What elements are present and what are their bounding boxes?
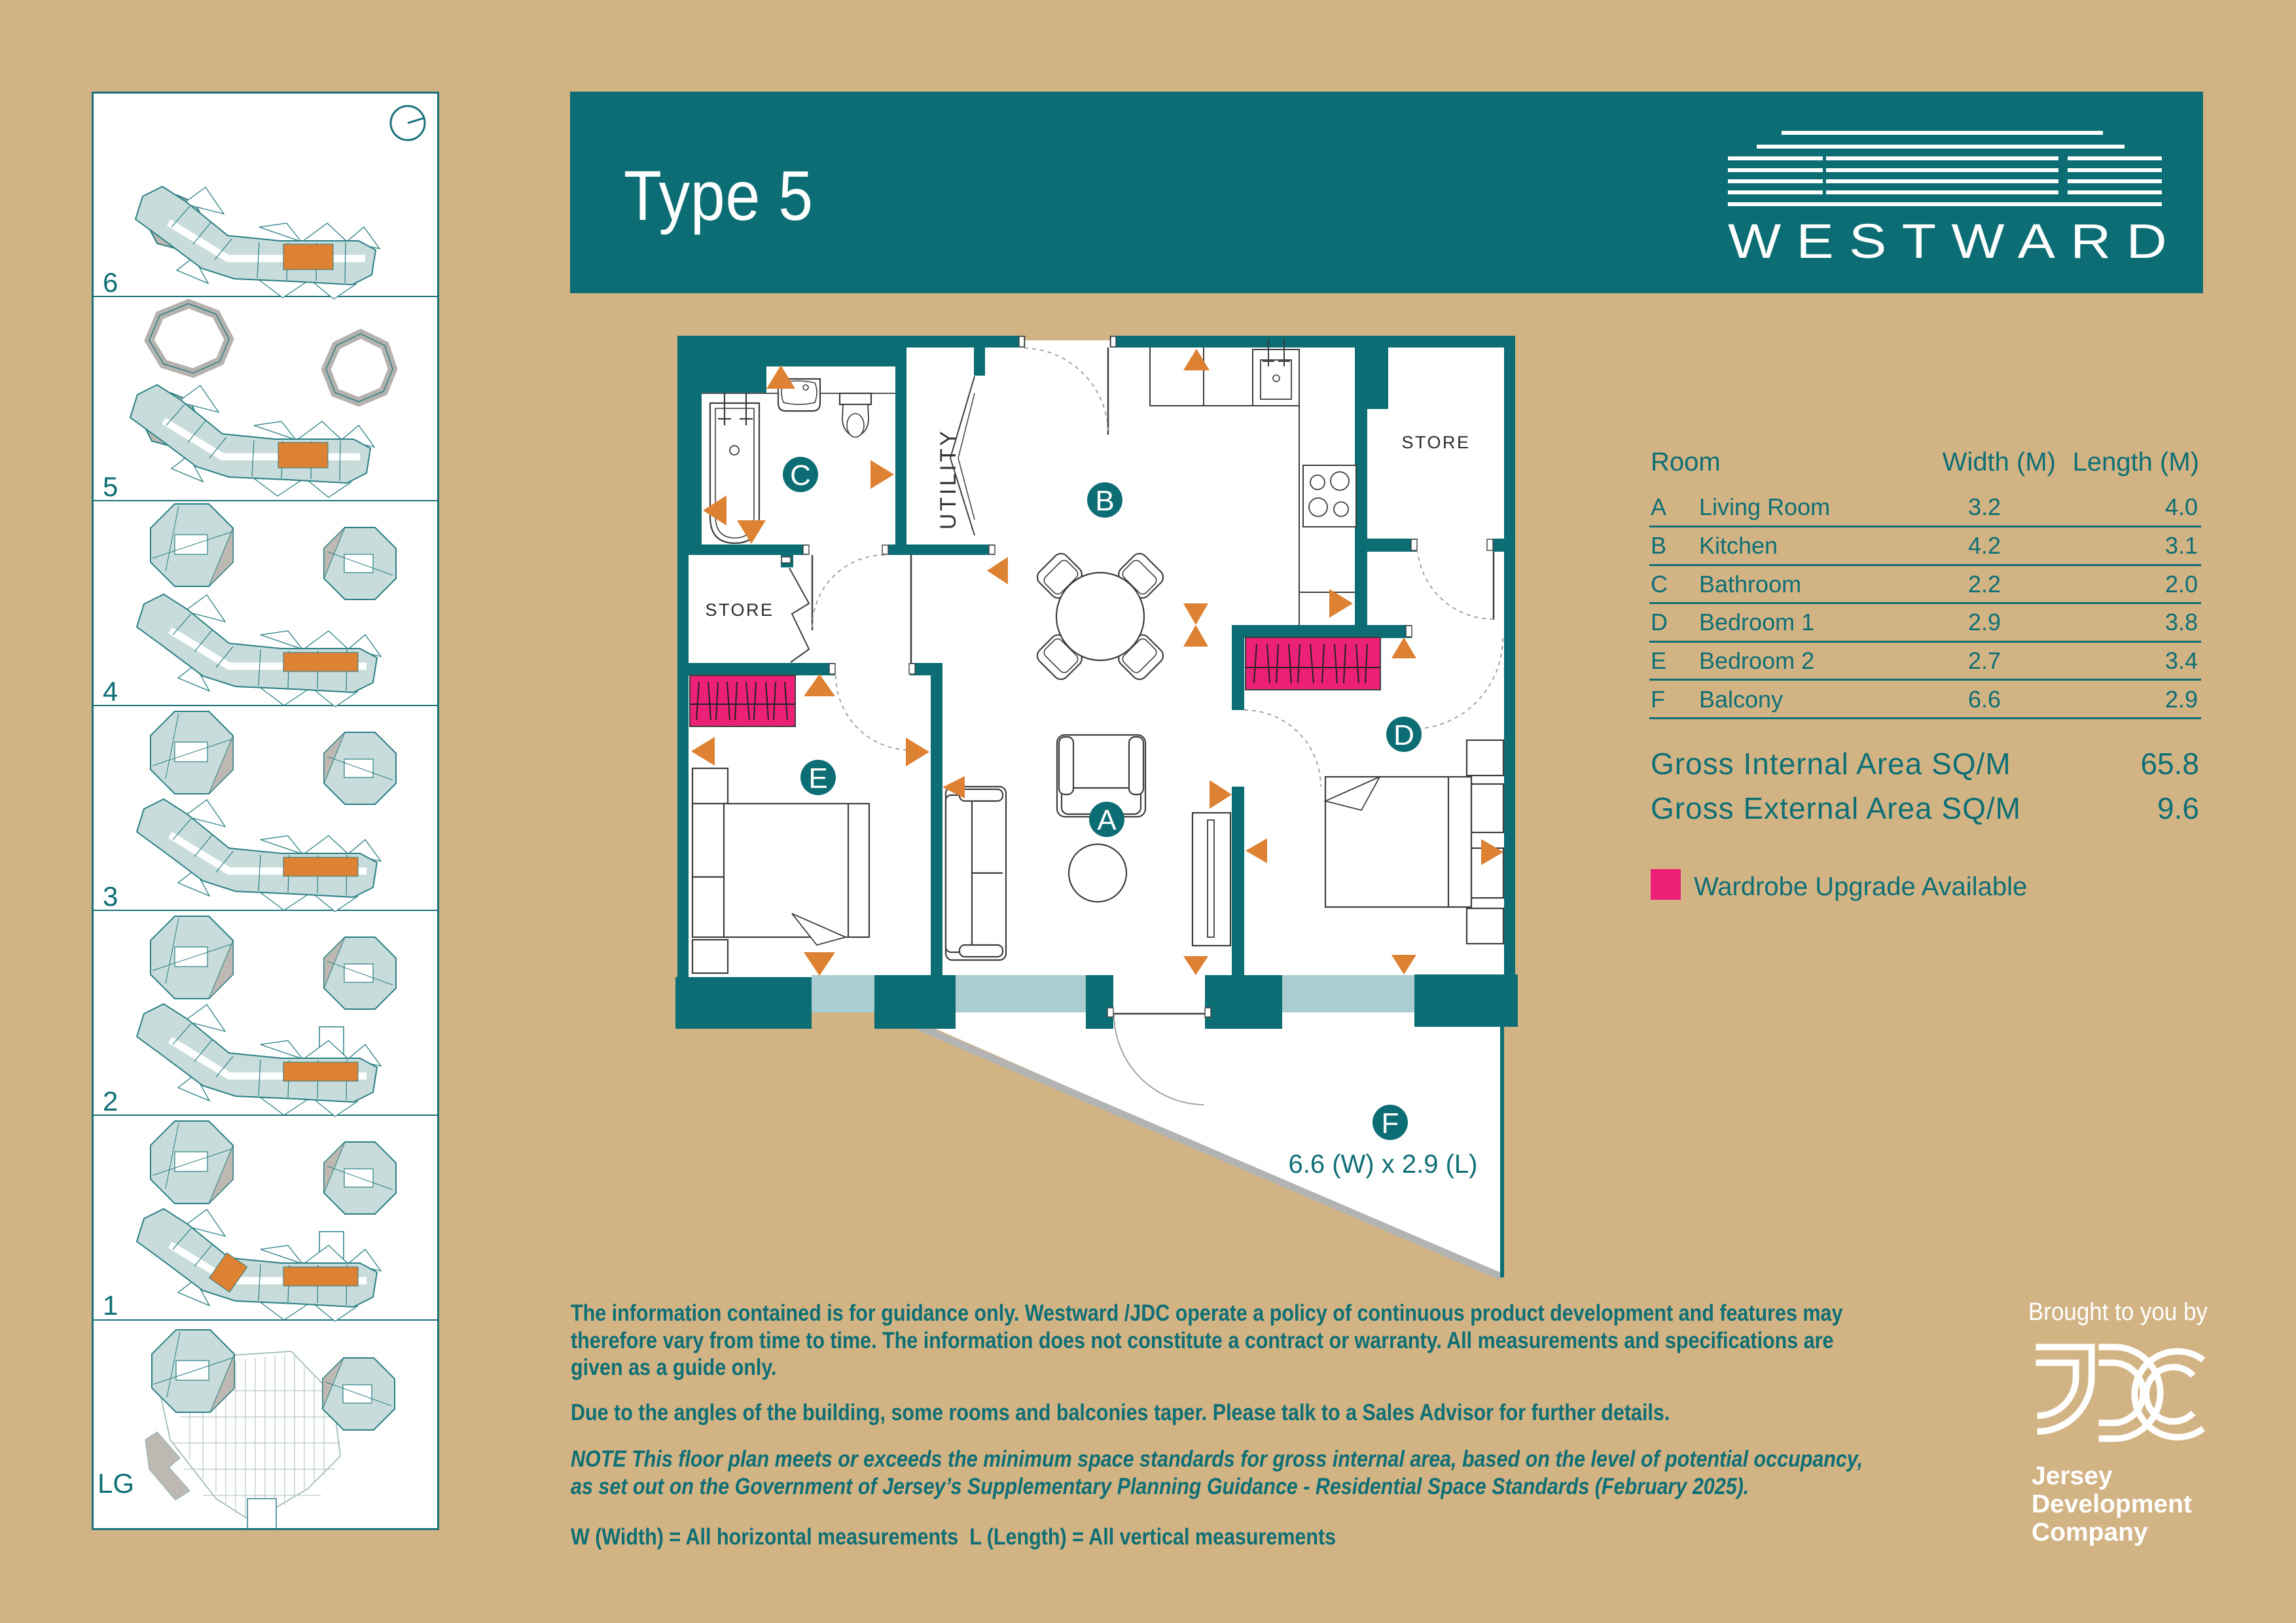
svg-text:D: D: [1393, 719, 1414, 751]
svg-text:B: B: [1095, 485, 1114, 517]
svg-text:UTILITY: UTILITY: [936, 429, 961, 530]
svg-text:F: F: [1382, 1107, 1399, 1139]
svg-text:STORE: STORE: [705, 600, 774, 620]
svg-text:E: E: [808, 762, 827, 794]
svg-text:A: A: [1097, 804, 1117, 836]
svg-text:6.6 (W) x 2.9 (L): 6.6 (W) x 2.9 (L): [1289, 1150, 1478, 1179]
svg-text:WESTWARD: WESTWARD: [1728, 214, 2182, 268]
svg-text:C: C: [790, 459, 811, 491]
svg-text:STORE: STORE: [1401, 433, 1470, 452]
